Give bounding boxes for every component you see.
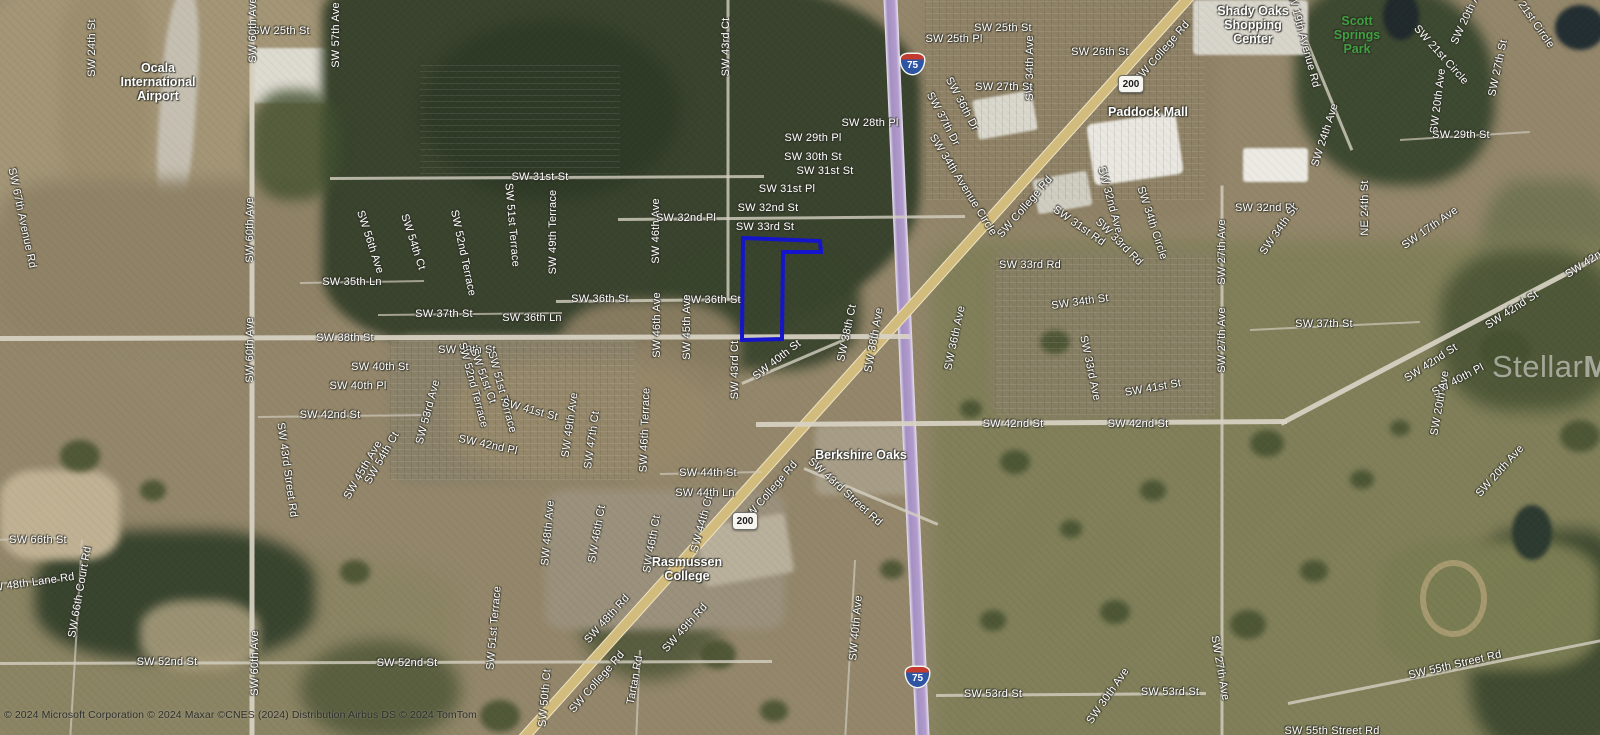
road-label: SW 46th Ave (651, 292, 663, 358)
road-label: SW 50th Ct (536, 668, 553, 727)
road-label: SW 24th St (86, 19, 98, 77)
road-label: SW 45th Ave (681, 294, 693, 360)
state-road-200-shield: 200 (1118, 75, 1144, 93)
tree-cluster (340, 560, 370, 584)
tree-cluster (880, 560, 904, 579)
shield-number: 200 (737, 516, 754, 527)
road-label: SW 51st Terrace (484, 586, 503, 671)
road-label: SW 37th St (415, 308, 473, 320)
road-label: SW 33rd Rd (999, 259, 1061, 271)
road-label: SW 40th St (351, 361, 409, 373)
poi-label: Shady Oaks Shopping Center (1217, 4, 1289, 46)
shield-number: 200 (1123, 79, 1140, 90)
road-label: SW 43rd Street Rd (274, 422, 299, 518)
road-label: SW 55th Street Rd (1284, 725, 1379, 735)
road-label: SW 53rd St (1141, 686, 1199, 698)
road-label: SW 38th St (316, 332, 374, 344)
road-label: SW 43rd Ct (720, 18, 732, 77)
terrain-patch (0, 180, 330, 340)
road-label: SW 35th Ln (322, 276, 381, 288)
tree-cluster (480, 700, 520, 732)
tree-cluster (140, 480, 166, 501)
road-label: SW 60th Ave (244, 317, 256, 383)
interstate-75-shield: 75 (901, 54, 924, 74)
rooftop-texture (995, 255, 1215, 415)
poi-label: Berkshire Oaks (815, 448, 907, 462)
tree-cluster (1350, 470, 1374, 489)
tree-cluster (700, 640, 736, 669)
road-label: SW 29th St (1432, 129, 1490, 141)
road-label: SW 25th Pl (925, 33, 982, 45)
road-label: SW 66th St (9, 534, 67, 546)
terrain-patch (1243, 148, 1308, 182)
road-label: SW 33rd St (736, 221, 794, 233)
terrain-patch (1555, 5, 1600, 50)
rooftop-texture (420, 60, 620, 180)
terrain-patch (250, 90, 340, 200)
road-label: SW 53rd St (964, 688, 1022, 700)
road-label: SW 27th Ave (1216, 307, 1228, 373)
road-label: SW 44th St (679, 467, 737, 479)
tree-cluster (1230, 610, 1266, 639)
road-label: SW 28th Pl (841, 117, 898, 129)
road-label: SW 31st St (511, 171, 568, 183)
tree-cluster (1560, 420, 1600, 452)
horse-track (1420, 560, 1487, 637)
road-label: SW 30th St (784, 151, 842, 163)
poi-label: Paddock Mall (1108, 105, 1188, 119)
tree-cluster (1000, 450, 1030, 474)
terrain-patch (0, 470, 120, 560)
tree-cluster (60, 440, 100, 472)
watermark-brand-bold: MLS (1583, 349, 1600, 384)
road-label: SW 27th Ave (1216, 219, 1228, 285)
tree-cluster (1060, 520, 1082, 538)
road-label: SW 21st Circle (1503, 0, 1556, 50)
road-label: SW 26th St (1071, 46, 1129, 58)
road-label: SW 25th St (974, 22, 1032, 34)
state-road-200-shield: 200 (732, 512, 758, 530)
road-label: SW 32nd St (738, 202, 799, 214)
road-label: SW 42nd St (1108, 418, 1169, 430)
road-label: SW 37th St (1295, 318, 1353, 330)
shield-number: 75 (912, 673, 923, 684)
road-label: SW 29th Pl (784, 132, 841, 144)
tree-cluster (960, 400, 982, 418)
road-label: SW 40th Ave (847, 595, 865, 661)
road-label: SW 32nd Pl (656, 212, 716, 224)
map-attribution: © 2024 Microsoft Corporation © 2024 Maxa… (4, 709, 477, 721)
road-label: SW 25th St (252, 25, 310, 37)
road-label: SW 40th Pl (329, 380, 386, 392)
road-label: SW 31st Pl (759, 183, 815, 195)
road-label: SW 60th Ave (249, 630, 261, 696)
poi-label: Rasmussen College (652, 555, 722, 583)
road-label: SW 36th Ln (502, 312, 561, 324)
poi-label: Scott Springs Park (1334, 14, 1381, 56)
tree-cluster (1250, 430, 1284, 457)
watermark-brand-regular: Stellar (1492, 349, 1583, 384)
road-label: SW 60th Ave (247, 0, 259, 63)
poi-label: Ocala International Airport (120, 61, 195, 103)
satellite-map[interactable]: SW 24th StSW 25th StSW 60th AveSW 57th A… (0, 0, 1600, 735)
road-label: NE 24th St (1359, 180, 1371, 235)
tree-cluster (760, 700, 788, 722)
tree-cluster (1390, 420, 1410, 436)
terrain-patch (1512, 505, 1552, 560)
road-label: SW 42nd St (300, 409, 361, 421)
road-label: SW 42nd St (983, 418, 1044, 430)
tree-cluster (980, 610, 1006, 631)
tree-cluster (1100, 600, 1130, 624)
road-label: SW 49th Terrace (547, 190, 559, 275)
road-label: SW 60th Ave (244, 197, 256, 263)
road-label: SW 46th Ave (650, 198, 662, 264)
road-label: SW 43rd Ct (729, 341, 741, 400)
tree-cluster (1140, 480, 1166, 501)
road-label: SW 27th St (975, 81, 1033, 93)
stellar-mls-watermark: StellarMLS (1492, 349, 1600, 385)
road-label: SW 57th Ave (330, 2, 342, 68)
road-label: SW 36th St (571, 293, 629, 305)
road-label: SW 52nd St (137, 656, 198, 668)
road-label: SW 31st St (796, 165, 853, 177)
shield-number: 75 (907, 60, 918, 71)
road-label: SW 52nd St (377, 657, 438, 669)
